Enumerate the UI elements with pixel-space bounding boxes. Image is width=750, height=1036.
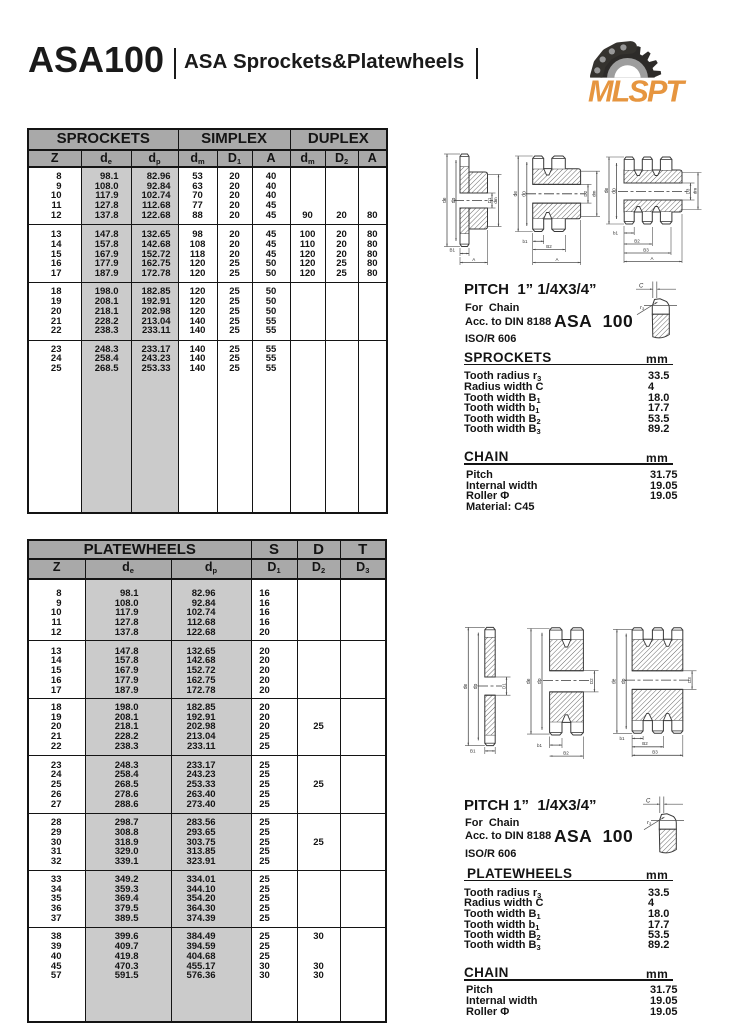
svg-text:B2: B2 [563, 750, 569, 755]
svg-text:dm: dm [493, 197, 498, 204]
svg-text:b1: b1 [613, 231, 619, 236]
svg-text:dp: dp [473, 684, 479, 690]
svg-text:A: A [472, 257, 475, 262]
svg-text:de: de [513, 191, 519, 197]
svg-text:D3: D3 [687, 677, 692, 683]
svg-text:A: A [555, 257, 558, 262]
svg-text:b1: b1 [523, 239, 529, 244]
svg-text:de: de [442, 197, 448, 203]
svg-text:B2: B2 [546, 244, 552, 249]
svg-text:dm: dm [693, 188, 698, 195]
svg-text:MLSPT: MLSPT [588, 75, 687, 109]
svg-text:dp: dp [611, 188, 617, 194]
svg-text:dp: dp [537, 678, 543, 684]
svg-text:D1: D1 [501, 683, 506, 689]
svg-text:de: de [604, 188, 610, 194]
svg-text:D3: D3 [685, 188, 690, 194]
svg-text:D2: D2 [583, 190, 588, 196]
svg-text:B1: B1 [470, 749, 476, 754]
svg-text:dp: dp [522, 191, 528, 197]
svg-text:B3: B3 [643, 248, 649, 253]
svg-text:dm: dm [591, 190, 596, 197]
svg-text:de: de [526, 678, 532, 684]
svg-text:C: C [646, 798, 651, 804]
svg-text:D1: D1 [487, 197, 492, 203]
svg-text:B2: B2 [634, 239, 640, 244]
svg-text:B3: B3 [652, 750, 658, 755]
svg-text:dp: dp [621, 678, 627, 684]
svg-text:D2: D2 [589, 678, 594, 684]
svg-text:de: de [463, 684, 469, 690]
svg-text:dp: dp [451, 198, 457, 204]
svg-text:b1: b1 [537, 743, 543, 748]
svg-text:de: de [612, 678, 618, 684]
svg-text:B2: B2 [642, 741, 648, 746]
svg-text:A: A [650, 256, 653, 261]
svg-text:C: C [639, 284, 644, 290]
svg-text:b1: b1 [620, 736, 626, 741]
svg-text:B1: B1 [450, 248, 456, 253]
